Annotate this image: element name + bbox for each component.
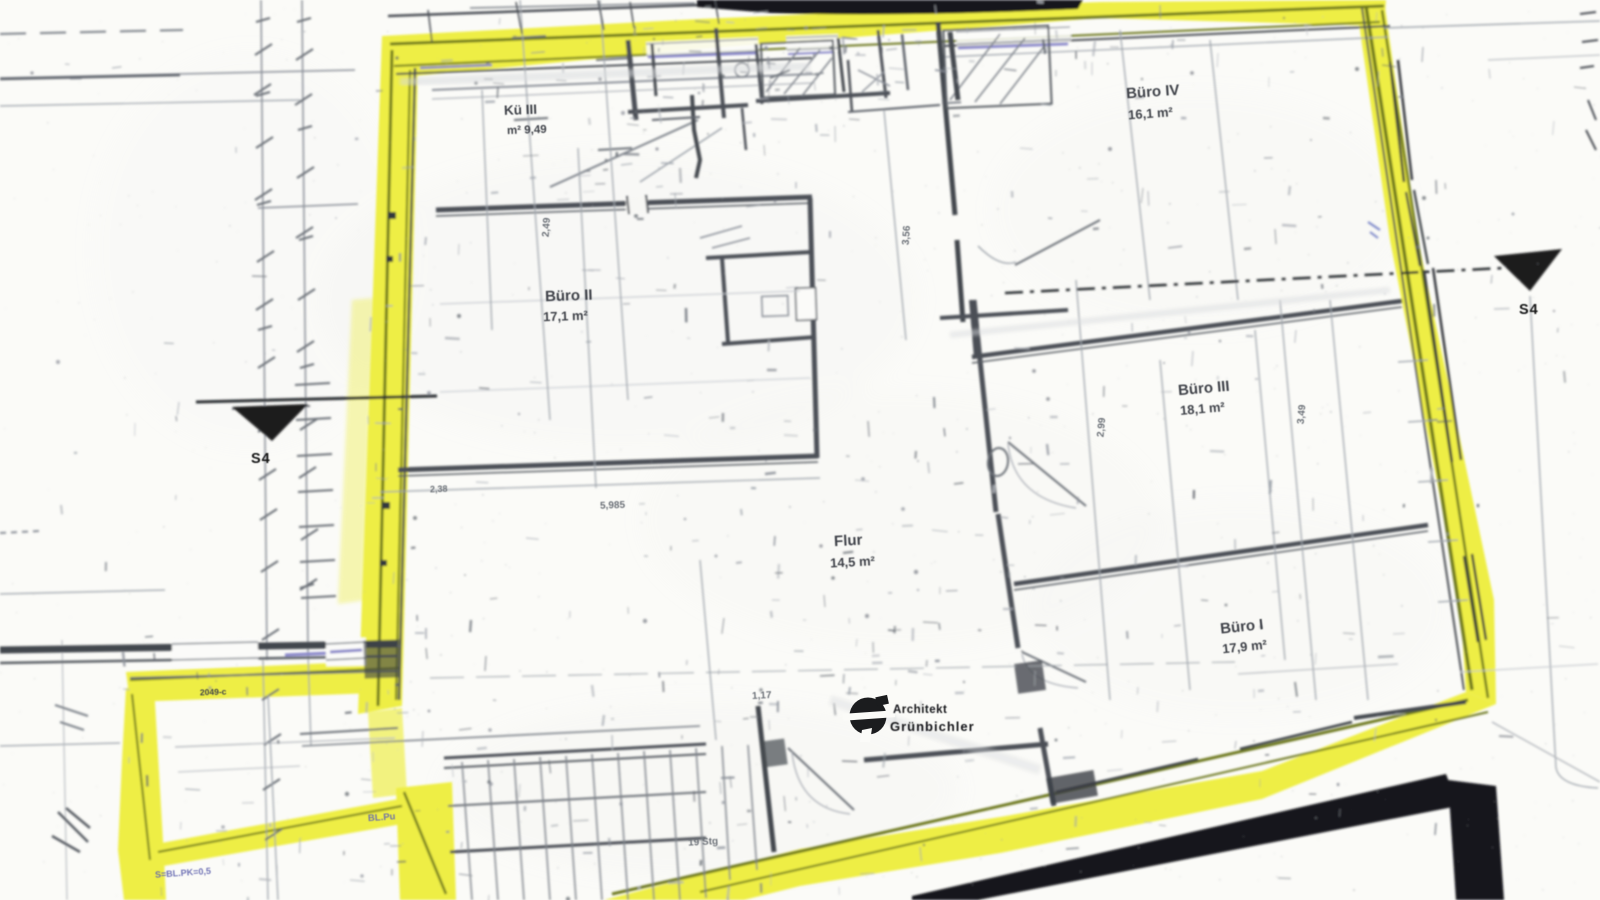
svg-text:2,49: 2,49 bbox=[541, 217, 553, 238]
svg-text:2,99: 2,99 bbox=[1096, 417, 1109, 438]
svg-text:Grünbichler: Grünbichler bbox=[890, 719, 975, 734]
svg-text:Architekt: Architekt bbox=[893, 704, 947, 716]
svg-text:S4: S4 bbox=[1519, 302, 1539, 318]
svg-text:Büro II: Büro II bbox=[545, 287, 593, 306]
svg-text:16,1 m²: 16,1 m² bbox=[1128, 104, 1174, 122]
svg-text:2,38: 2,38 bbox=[430, 484, 448, 495]
svg-text:BL.Pu: BL.Pu bbox=[368, 811, 396, 824]
svg-text:3,49: 3,49 bbox=[1296, 404, 1309, 425]
svg-text:17,1 m²: 17,1 m² bbox=[543, 308, 589, 325]
svg-text:2049-c: 2049-c bbox=[200, 686, 227, 697]
svg-text:m² 9,49: m² 9,49 bbox=[507, 124, 547, 137]
svg-text:Kü III: Kü III bbox=[504, 102, 538, 118]
svg-text:S4: S4 bbox=[251, 451, 271, 467]
svg-text:5,985: 5,985 bbox=[600, 500, 626, 512]
svg-text:14,5 m²: 14,5 m² bbox=[830, 553, 876, 570]
svg-text:19 Stg: 19 Stg bbox=[688, 836, 719, 849]
svg-text:Flur: Flur bbox=[834, 532, 863, 550]
svg-text:3,56: 3,56 bbox=[901, 225, 913, 246]
svg-text:1,17: 1,17 bbox=[752, 690, 772, 702]
